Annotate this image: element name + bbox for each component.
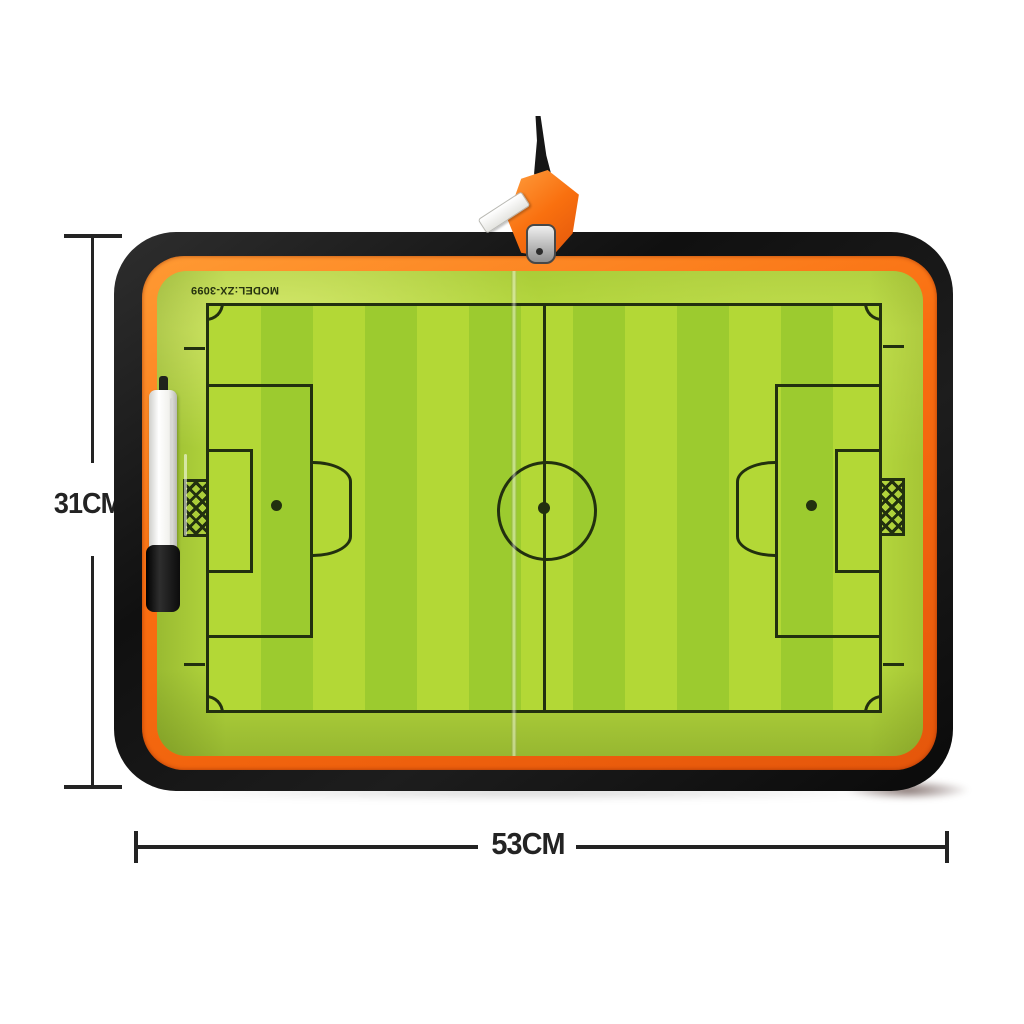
zipper-slider <box>526 224 556 264</box>
distance-mark-right-top <box>883 345 904 348</box>
width-dim-line-left <box>137 845 478 849</box>
distance-mark-left-bottom <box>184 663 205 666</box>
height-dim-line-upper <box>91 236 94 463</box>
pen-holder-strap <box>184 454 187 536</box>
height-dim-line-lower <box>91 556 94 787</box>
corner-arc-bottom-right <box>864 695 882 713</box>
fold-crease <box>511 271 517 756</box>
width-dim-cap-right <box>945 831 949 863</box>
width-dim-line-right <box>576 845 947 849</box>
zipper-slider-hole <box>536 248 543 255</box>
product-photo: 31CM 53CM <box>0 0 1024 1024</box>
soccer-pitch <box>206 303 882 713</box>
pen-cap <box>146 545 180 612</box>
goal-area-left <box>206 449 253 573</box>
pen-clip <box>170 398 173 548</box>
orange-zipper-trim: MODEL:ZX-3099 <box>142 256 937 770</box>
model-number-print: MODEL:ZX-3099 <box>195 281 279 296</box>
center-spot <box>538 502 550 514</box>
distance-mark-right-bottom <box>883 663 904 666</box>
goal-area-right <box>835 449 882 573</box>
penalty-arc-left <box>313 461 352 557</box>
distance-mark-left-top <box>184 347 205 350</box>
coaching-board-case: MODEL:ZX-3099 <box>114 232 953 791</box>
penalty-arc-right <box>736 461 775 557</box>
goal-net-right <box>879 478 905 536</box>
marker-pen <box>144 376 188 616</box>
height-dim-cap-bottom <box>64 785 122 789</box>
penalty-spot-left <box>271 500 282 511</box>
corner-arc-top-right <box>864 303 882 321</box>
corner-arc-bottom-left <box>206 695 224 713</box>
width-dim-label: 53CM <box>485 826 571 862</box>
corner-arc-top-left <box>206 303 224 321</box>
green-field-panel: MODEL:ZX-3099 <box>157 271 923 756</box>
penalty-spot-right <box>806 500 817 511</box>
